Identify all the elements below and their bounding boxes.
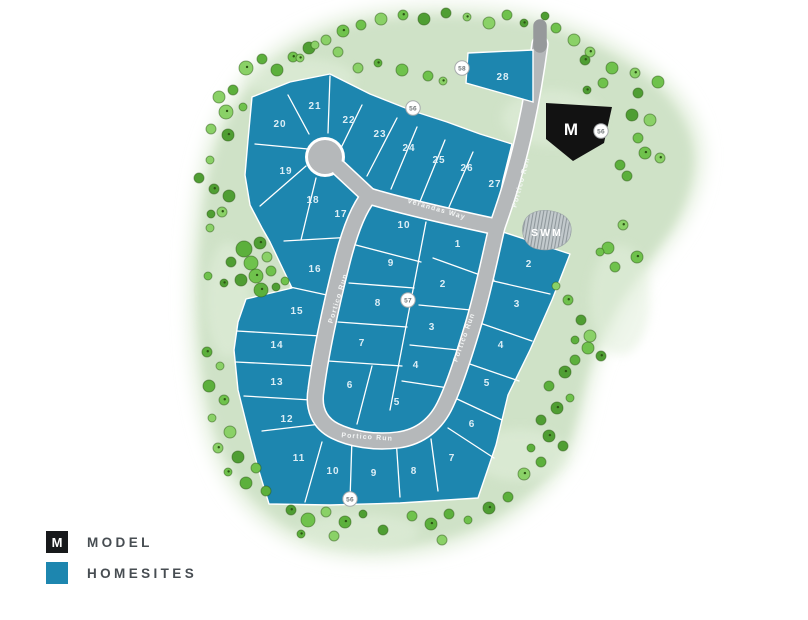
lot-19[interactable]: 19 [279, 166, 292, 177]
site-map-stage: Portico Run Portico Run Portico Run Port… [0, 0, 808, 620]
model-m-label: M [564, 120, 578, 139]
lot-16[interactable]: 16 [308, 264, 321, 275]
lot-14[interactable]: 14 [270, 340, 283, 351]
lot-28[interactable]: 28 [496, 72, 509, 83]
lot-22[interactable]: 22 [342, 115, 355, 126]
lot-23[interactable]: 23 [373, 129, 386, 140]
site-map: Portico Run Portico Run Portico Run Port… [0, 0, 808, 620]
svg-text:56: 56 [597, 129, 605, 136]
lot-9b[interactable]: 9 [371, 468, 378, 479]
legend: M MODEL HOMESITES [46, 531, 197, 593]
legend-row-homesites: HOMESITES [46, 562, 197, 584]
lot-1i[interactable]: 1 [455, 239, 462, 250]
swm-pond: SWM [523, 210, 572, 250]
lot-6e[interactable]: 6 [469, 419, 476, 430]
lot-9i[interactable]: 9 [388, 258, 395, 269]
lot-7b[interactable]: 7 [449, 453, 456, 464]
swm-label: SWM [531, 227, 563, 239]
lot-8i[interactable]: 8 [375, 298, 382, 309]
lot-10i[interactable]: 10 [397, 220, 410, 231]
badge-56-top: 56 [406, 101, 420, 115]
lot-11[interactable]: 11 [293, 453, 306, 464]
lot-17[interactable]: 17 [334, 209, 347, 220]
lot-8b[interactable]: 8 [411, 466, 418, 477]
lot-5e[interactable]: 5 [484, 378, 491, 389]
lot-26[interactable]: 26 [460, 163, 473, 174]
lot-2i[interactable]: 2 [440, 279, 447, 290]
lot-21[interactable]: 21 [308, 101, 321, 112]
svg-text:58: 58 [458, 66, 466, 73]
homesites-swatch-icon [46, 562, 68, 584]
lot-2e[interactable]: 2 [526, 259, 533, 270]
lot-10b[interactable]: 10 [326, 466, 339, 477]
lot-4e[interactable]: 4 [498, 340, 505, 351]
svg-text:56: 56 [346, 497, 354, 504]
lot-3i[interactable]: 3 [429, 322, 436, 333]
lot-4i[interactable]: 4 [413, 360, 420, 371]
lot-15[interactable]: 15 [290, 306, 303, 317]
lot-13[interactable]: 13 [270, 377, 283, 388]
legend-row-model: M MODEL [46, 531, 197, 553]
lot-7i[interactable]: 7 [359, 338, 366, 349]
svg-text:57: 57 [404, 298, 412, 305]
lot-6i[interactable]: 6 [347, 380, 354, 391]
lot-25[interactable]: 25 [432, 155, 445, 166]
culdesac-circle [308, 140, 342, 174]
legend-model-label: MODEL [87, 535, 153, 550]
legend-homesites-label: HOMESITES [87, 566, 197, 581]
lot-18[interactable]: 18 [306, 195, 319, 206]
badge-57: 57 [401, 293, 415, 307]
lot-3e[interactable]: 3 [514, 299, 521, 310]
model-swatch-icon: M [46, 531, 68, 553]
badge-56-bottom: 56 [343, 492, 357, 506]
lot-24[interactable]: 24 [402, 143, 415, 154]
badge-56-model: 56 [594, 124, 608, 138]
lot-12[interactable]: 12 [280, 414, 293, 425]
svg-text:56: 56 [409, 106, 417, 113]
lot-27[interactable]: 27 [488, 179, 501, 190]
lot-20[interactable]: 20 [273, 119, 286, 130]
badge-58: 58 [455, 61, 469, 75]
lot-5i[interactable]: 5 [394, 397, 401, 408]
